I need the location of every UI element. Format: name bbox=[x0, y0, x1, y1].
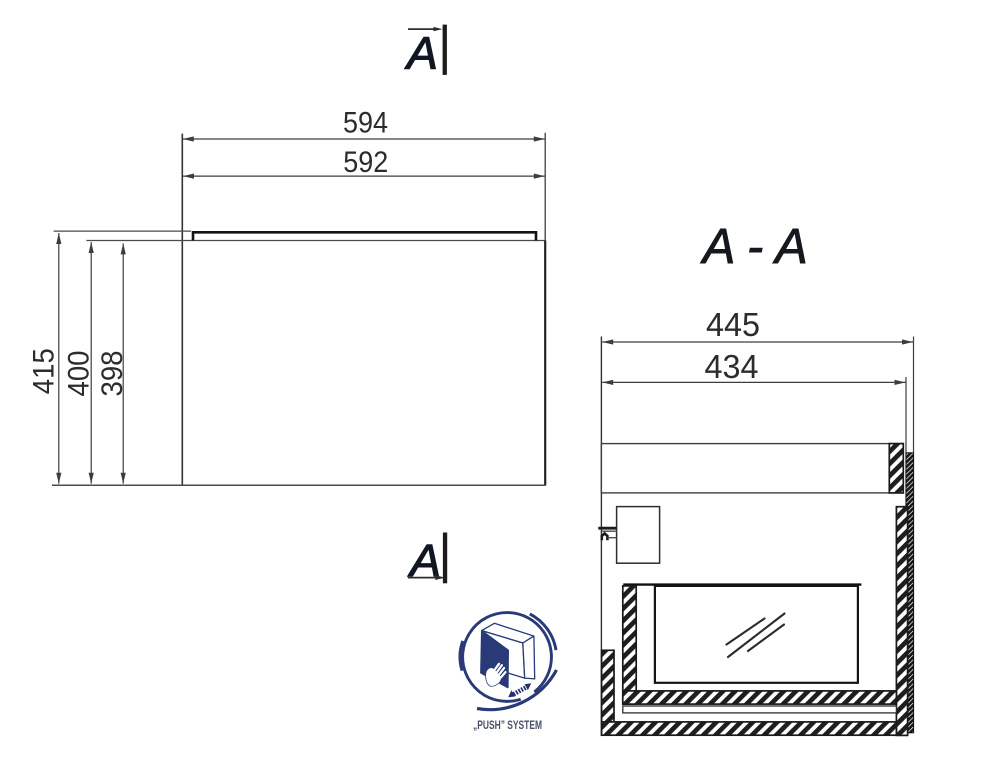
svg-text:415: 415 bbox=[28, 348, 61, 394]
svg-text:A: A bbox=[404, 27, 438, 78]
svg-text:592: 592 bbox=[343, 146, 388, 179]
svg-text:A - A: A - A bbox=[700, 219, 808, 274]
svg-text:594: 594 bbox=[343, 107, 388, 140]
svg-text:398: 398 bbox=[96, 351, 129, 397]
svg-text:434: 434 bbox=[705, 349, 759, 386]
svg-text:„PUSH” SYSTEM: „PUSH” SYSTEM bbox=[473, 718, 542, 732]
svg-text:400: 400 bbox=[63, 351, 96, 397]
svg-text:445: 445 bbox=[706, 307, 760, 344]
